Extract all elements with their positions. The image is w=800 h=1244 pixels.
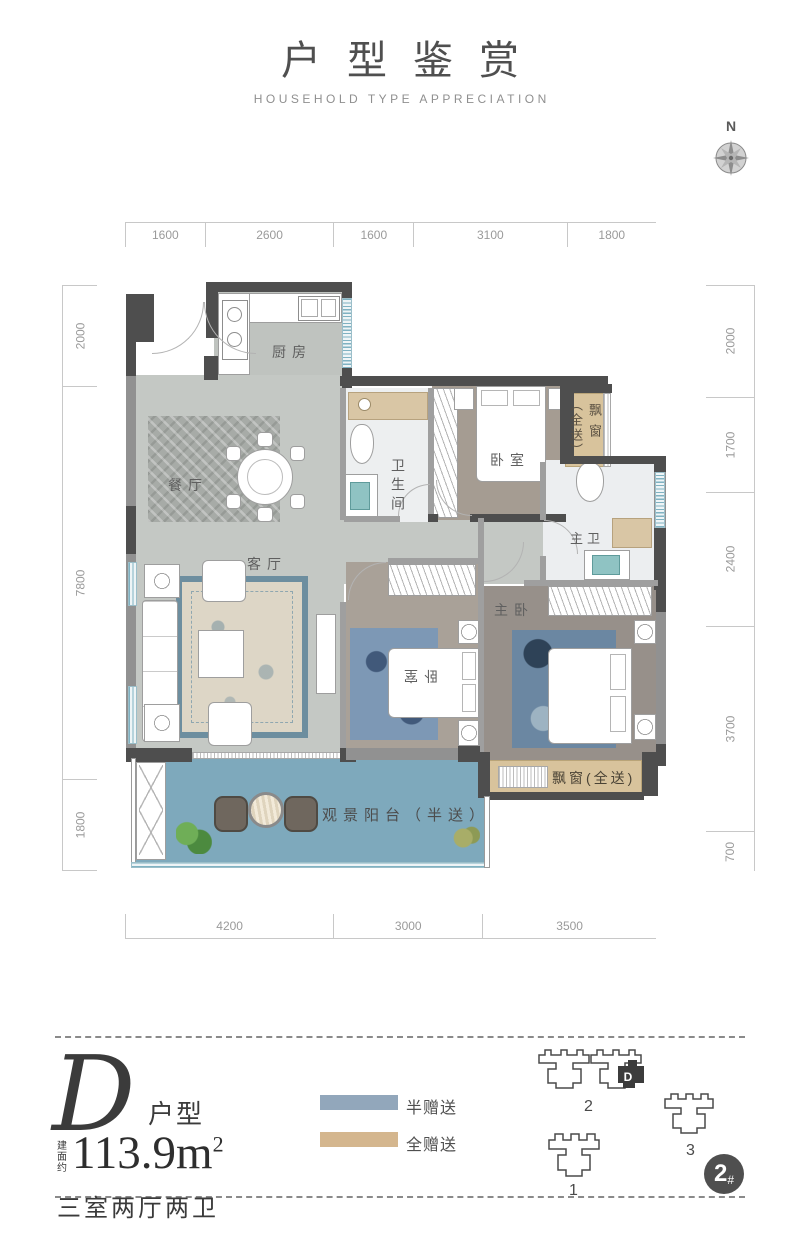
dining-chair — [257, 432, 273, 447]
dim-top-2: 2600 — [206, 223, 335, 247]
wall — [540, 462, 546, 520]
dim-bottom-2: 3000 — [334, 914, 483, 938]
cabinet-x-panel — [139, 810, 163, 855]
toilet — [576, 462, 604, 502]
building-2-number: 2 — [584, 1098, 593, 1116]
pillow — [481, 390, 508, 406]
living-label: 客厅 — [247, 554, 287, 574]
dimensions-top: 1600 2600 1600 3100 1800 — [125, 222, 656, 247]
legend-swatch-full-gift — [320, 1132, 398, 1147]
area-prefix: 建面约 — [57, 1141, 69, 1174]
area-number: 113.9m — [72, 1127, 213, 1179]
bedroom-second-label: 卧室 — [398, 666, 438, 686]
wall — [458, 746, 480, 762]
master-bath-label: 主卫 — [570, 528, 604, 547]
balcony-table — [248, 792, 284, 828]
bay-window-side-note: （全送） — [566, 398, 585, 458]
dim-bottom-3: 3500 — [483, 914, 656, 938]
balcony-wall — [131, 758, 136, 866]
plant — [452, 824, 480, 852]
pillow — [513, 390, 540, 406]
bay-window-icon — [498, 766, 548, 788]
pillow — [462, 652, 476, 680]
wall — [340, 602, 346, 748]
bay-window-bottom-label: 飘窗(全送) — [552, 768, 635, 788]
wall — [126, 506, 136, 554]
nightstand — [634, 714, 656, 740]
unit-d-marker-label: D — [624, 1070, 633, 1084]
balcony-label: 观景阳台（半送） — [322, 804, 490, 825]
bathroom-sink-basin — [350, 482, 370, 510]
building-badge: 2# — [704, 1154, 744, 1194]
cabinet-x-panel — [139, 765, 163, 810]
wall — [344, 516, 400, 522]
dim-top-1: 1600 — [126, 223, 206, 247]
wall — [206, 282, 352, 292]
pillow — [610, 696, 626, 732]
wall — [656, 590, 666, 612]
tv-cabinet — [316, 614, 336, 694]
dim-left-3: 1800 — [63, 780, 97, 871]
unit-suffix: 户型 — [148, 1094, 204, 1131]
bathroom-label: 卫生间 — [388, 458, 408, 515]
wardrobe — [388, 564, 476, 596]
wall — [524, 580, 658, 586]
badge-hash: # — [727, 1174, 734, 1186]
kitchen-sink-basin — [321, 299, 336, 317]
window — [128, 562, 137, 606]
dining-chair — [226, 446, 241, 461]
balcony-cabinet — [136, 762, 166, 860]
wall — [126, 342, 136, 376]
wall — [126, 294, 154, 342]
badge-number: 2 — [714, 1162, 727, 1186]
dining-chair — [290, 446, 305, 461]
dimensions-left: 2000 7800 1800 — [62, 285, 97, 871]
area-value: 113.9m2 — [72, 1130, 224, 1177]
balcony-chair — [214, 796, 248, 832]
dim-top-4: 3100 — [414, 223, 567, 247]
kitchen-sink-basin — [301, 299, 318, 317]
pillow — [610, 654, 626, 690]
dim-top-5: 1800 — [568, 223, 656, 247]
siteplan-building-3-outline — [662, 1092, 716, 1140]
dim-right-5: 700 — [706, 832, 754, 871]
legend-swatch-half-gift — [320, 1095, 398, 1110]
building-3-number: 3 — [686, 1142, 695, 1160]
armchair — [202, 560, 246, 602]
master-bath-sink-basin — [592, 555, 620, 575]
dim-right-1: 2000 — [706, 286, 754, 398]
dining-label: 餐厅 — [168, 475, 208, 495]
wall — [484, 792, 644, 800]
page-title: 户型鉴赏 — [0, 28, 800, 86]
legend-label-half-gift: 半赠送 — [406, 1094, 457, 1118]
dining-table-inner — [247, 459, 283, 495]
shower-head — [358, 398, 371, 411]
dashed-divider-top — [55, 1036, 745, 1038]
nightstand — [458, 720, 480, 746]
wall — [340, 388, 346, 520]
wall — [342, 282, 352, 298]
area-superscript: 2 — [213, 1131, 224, 1156]
siteplan-building-1-outline — [546, 1132, 602, 1184]
window — [128, 686, 137, 744]
dining-chair — [226, 494, 241, 509]
wall — [654, 456, 666, 472]
floorplan-page: 户型鉴赏 HOUSEHOLD TYPE APPRECIATION N 1600 … — [0, 0, 800, 1244]
wall — [564, 384, 612, 393]
dim-bottom-1: 4200 — [126, 914, 334, 938]
dining-chair — [257, 507, 273, 522]
side-table — [144, 704, 180, 742]
wall — [656, 744, 666, 766]
dimensions-bottom: 4200 3000 3500 — [125, 914, 656, 939]
toilet — [350, 424, 374, 464]
window — [655, 472, 665, 528]
bedroom-top-label: 卧室 — [490, 450, 530, 470]
entry-door-leaf — [152, 302, 204, 354]
side-table — [144, 564, 180, 598]
balcony-chair — [284, 796, 318, 832]
nightstand — [454, 388, 474, 410]
page-subtitle: HOUSEHOLD TYPE APPRECIATION — [0, 92, 800, 106]
kitchen-label: 厨房 — [272, 342, 312, 362]
dim-right-3: 2400 — [706, 493, 754, 627]
wall — [204, 356, 218, 380]
coffee-table — [198, 630, 244, 678]
dim-top-3: 1600 — [334, 223, 414, 247]
pillow — [462, 684, 476, 712]
building-1-number: 1 — [569, 1182, 578, 1200]
siteplan-building-2-outline: D — [536, 1048, 646, 1096]
master-bedroom-label: 主卧 — [494, 600, 534, 620]
plant — [176, 820, 212, 854]
armchair — [208, 702, 252, 746]
kitchen-window — [342, 298, 352, 376]
entry-door-leaf — [204, 302, 256, 354]
bay-window-side-label: 飘窗 — [585, 403, 604, 445]
legend-label-full-gift: 全赠送 — [406, 1131, 457, 1155]
dim-left-2: 7800 — [63, 387, 97, 779]
nightstand — [634, 620, 656, 644]
dim-right-2: 1700 — [706, 398, 754, 493]
balcony-sliding-door — [192, 752, 342, 759]
dining-chair — [290, 494, 305, 509]
nightstand — [458, 620, 480, 644]
dim-left-1: 2000 — [63, 286, 97, 387]
dimensions-right: 2000 1700 2400 3700 700 — [706, 285, 755, 871]
wardrobe — [548, 586, 652, 616]
layout-description: 三室两厅两卫 — [57, 1188, 219, 1223]
wall — [388, 558, 478, 564]
wall — [656, 590, 666, 766]
balcony-railing — [131, 862, 489, 868]
compass-icon — [708, 132, 754, 184]
shower — [612, 518, 652, 548]
dim-right-4: 3700 — [706, 627, 754, 833]
